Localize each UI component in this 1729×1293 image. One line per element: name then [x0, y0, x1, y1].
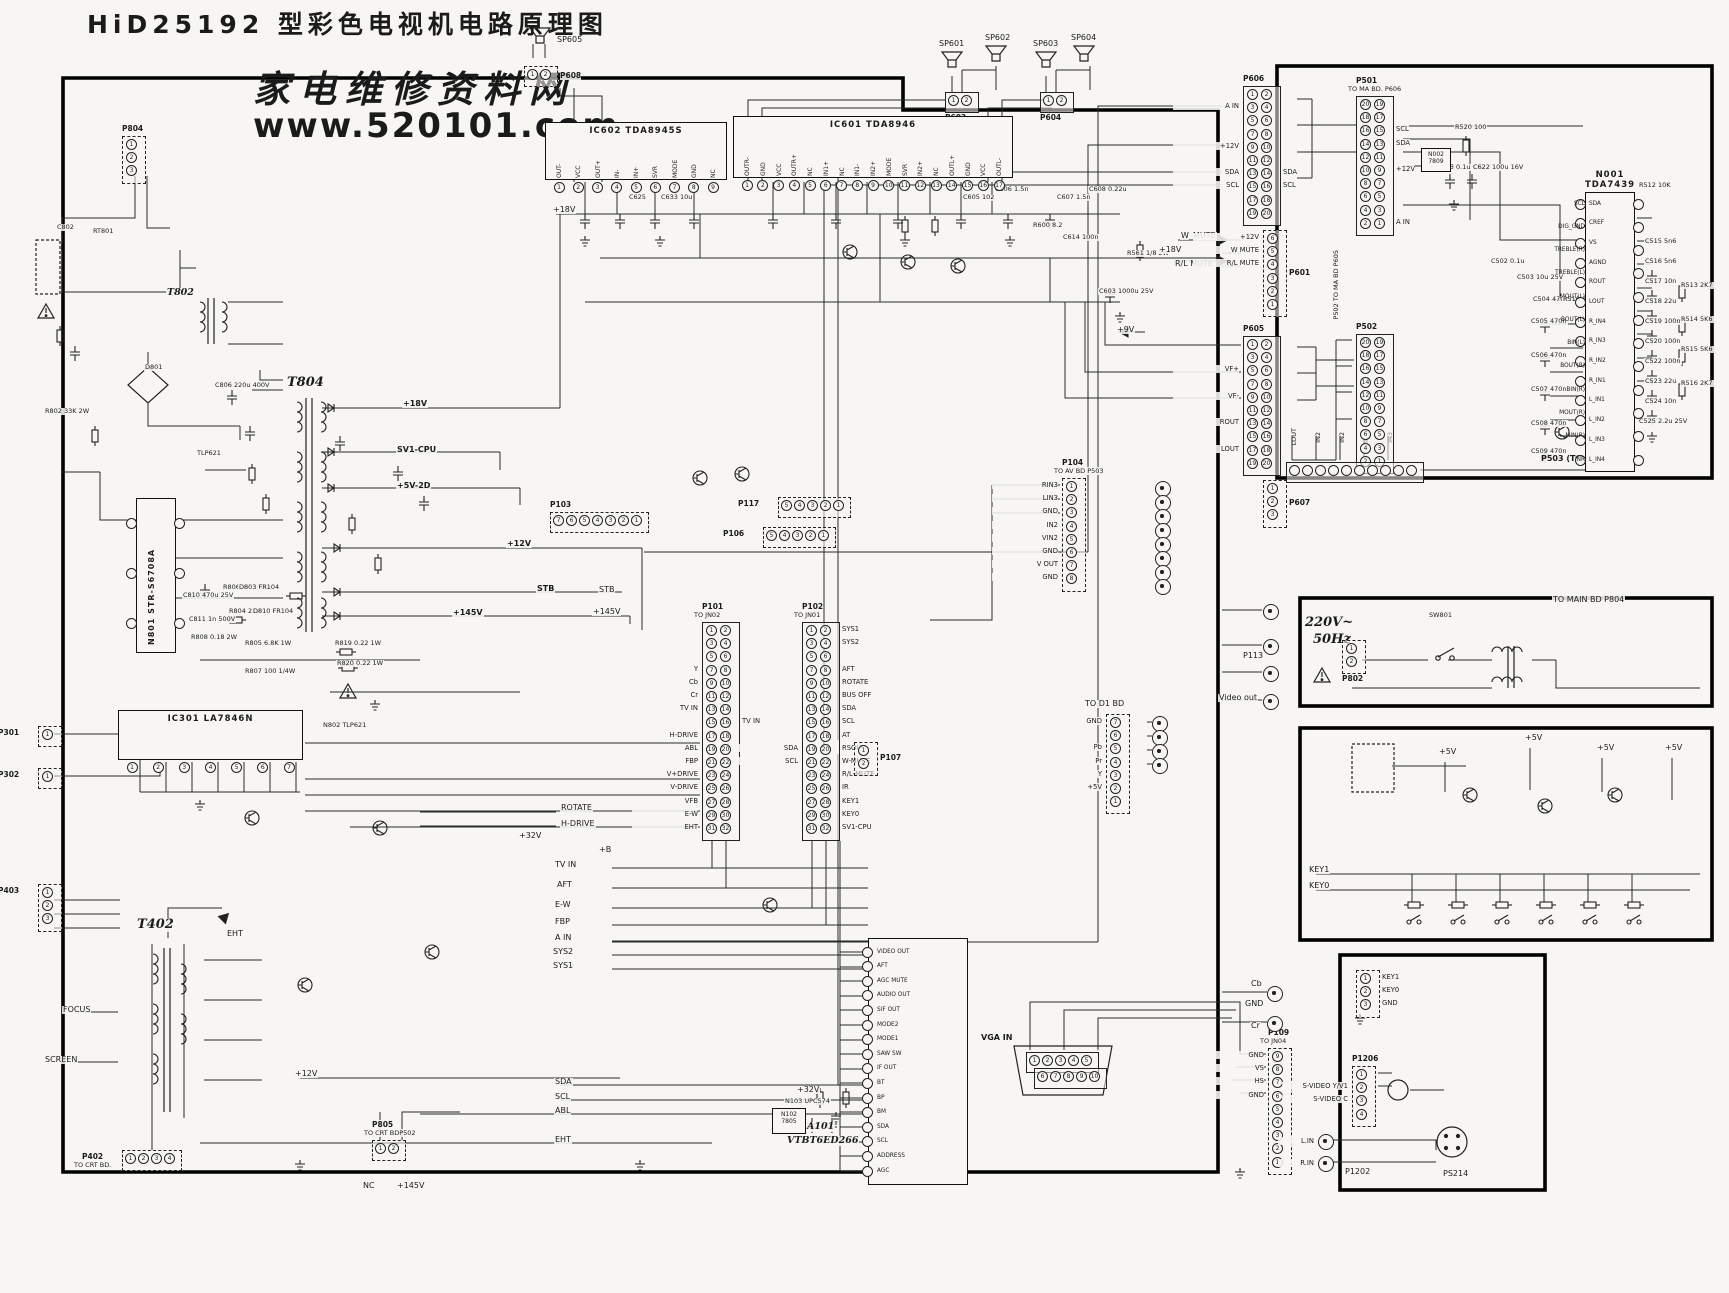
- ic-pin: 2: [153, 762, 164, 773]
- pin: 11: [706, 691, 717, 702]
- ic-pin: 4: [789, 180, 800, 191]
- connector-id: P402: [82, 1152, 103, 1161]
- ic-pin-name: SVR: [652, 134, 659, 178]
- ic-pin-name: L_IN3: [1589, 437, 1605, 443]
- ic-pin: [1633, 408, 1644, 419]
- ic-pin-name: MODE1: [877, 1036, 898, 1042]
- pin: 20: [1261, 458, 1272, 469]
- signal-label: +5V: [1036, 783, 1102, 791]
- ic-label: N001: [1565, 170, 1655, 180]
- connector-id: P107: [880, 753, 901, 762]
- ic-pin: [1633, 222, 1644, 233]
- pin: 20: [1261, 208, 1272, 219]
- ic-pin-name: BOUT(R): [1539, 363, 1585, 369]
- connector-id: P804: [122, 124, 143, 133]
- signal-label: GND: [992, 547, 1058, 555]
- signal-label: LOUT: [1173, 445, 1239, 453]
- pin: 5: [1272, 1104, 1283, 1115]
- label: C633 10u: [660, 194, 693, 201]
- pin: 1: [527, 69, 538, 80]
- ic-pin-name: SDA: [877, 1124, 889, 1130]
- pin: 3: [1267, 273, 1278, 284]
- pin: 8: [820, 665, 831, 676]
- label: Video out: [1218, 694, 1258, 702]
- ic-pin: 7: [284, 762, 295, 773]
- pin: [1393, 465, 1404, 476]
- pin: 17: [1247, 195, 1258, 206]
- pin: 2: [138, 1153, 149, 1164]
- pin: 3: [1374, 443, 1385, 454]
- pin: 1: [1346, 643, 1357, 654]
- ic-pin-name: SAW SW: [877, 1051, 901, 1057]
- label: TO D1 BD: [1084, 700, 1125, 708]
- ic-pin-name: SIF OUT: [877, 1007, 900, 1013]
- signal-label: A IN: [1396, 218, 1410, 226]
- label: SP602: [984, 34, 1011, 42]
- pin: 9: [1247, 142, 1258, 153]
- ic-pin-name: IN2+: [870, 132, 877, 176]
- pin: 9: [1076, 1071, 1087, 1082]
- label: P1202: [1344, 1168, 1371, 1176]
- pin: 8: [1261, 129, 1272, 140]
- label: +5V: [1596, 744, 1615, 752]
- ic-pin-name: INR: [1539, 457, 1585, 463]
- label: C605 102: [962, 194, 995, 201]
- label: C519 100n: [1644, 318, 1682, 325]
- ic-pin: [174, 568, 185, 579]
- pin: 13: [1374, 139, 1385, 150]
- ic-pin-name: R_IN1: [1589, 378, 1606, 384]
- reg-part: 7805: [773, 1119, 805, 1126]
- label: T402: [136, 918, 175, 932]
- pin: 10: [720, 678, 731, 689]
- rca-jack: [1318, 1156, 1334, 1172]
- pin: 9: [1272, 1051, 1283, 1062]
- ic-pin-name: OUTR-: [744, 132, 751, 176]
- ic-pin-name: DIG_GND: [1539, 224, 1585, 230]
- signal-label: ROTATE: [842, 678, 868, 686]
- pin: 7: [553, 515, 564, 526]
- pin: 2: [1261, 339, 1272, 350]
- signal-label: VIN2: [992, 534, 1058, 542]
- pin: 2: [961, 95, 972, 106]
- pin: [1380, 465, 1391, 476]
- label: IN2: [1314, 432, 1323, 443]
- pin: 4: [1360, 443, 1371, 454]
- connector-id: P802: [1342, 674, 1363, 683]
- pin: 21: [706, 757, 717, 768]
- pin: 1: [1247, 339, 1258, 350]
- pin: 10: [1261, 142, 1272, 153]
- pin: [1289, 465, 1300, 476]
- label: SP601: [938, 40, 965, 48]
- label: A IN: [554, 934, 572, 942]
- pin: 4: [1110, 757, 1121, 768]
- pin: 30: [820, 810, 831, 821]
- signal-label: KEY1: [1382, 973, 1399, 981]
- ic-pin-name: ROUT: [1589, 279, 1605, 285]
- pin: 12: [1261, 155, 1272, 166]
- ic-pin: 3: [773, 180, 784, 191]
- ic-pin: 11: [899, 180, 910, 191]
- pin: 4: [779, 530, 790, 541]
- pin: 19: [1374, 99, 1385, 110]
- rca-jack: [1318, 1134, 1334, 1150]
- label: +145V: [592, 608, 621, 616]
- ic-pin-name: VS: [1589, 240, 1597, 246]
- ic-pin-name: BP: [877, 1095, 884, 1101]
- signal-label: IR: [842, 783, 849, 791]
- label: D803 FR104: [238, 584, 280, 591]
- pin: 27: [706, 797, 717, 808]
- label: C522 100n: [1644, 358, 1682, 365]
- label: +18V: [1158, 246, 1182, 254]
- label: Cb: [1250, 980, 1263, 988]
- ic-pin-name: OUT+: [595, 134, 602, 178]
- signal-label: SDA: [1173, 168, 1239, 176]
- pin: 11: [1247, 405, 1258, 416]
- pin: 10: [1089, 1071, 1100, 1082]
- reg-N102: N1027805: [772, 1108, 806, 1134]
- ic-pin-name: NC: [710, 134, 717, 178]
- pin: 17: [806, 731, 817, 742]
- ic-pin: 6: [650, 182, 661, 193]
- label: AFT: [556, 881, 573, 889]
- ic-pin-name: L_IN2: [1589, 417, 1605, 423]
- label: R600 8.2: [1032, 222, 1063, 229]
- pin: 2: [1360, 218, 1371, 229]
- label: +12V: [294, 1070, 318, 1078]
- signal-label: Cb: [632, 678, 698, 686]
- ic-pin: [862, 947, 873, 958]
- pin: 3: [1374, 205, 1385, 216]
- pin: 7: [1050, 1071, 1061, 1082]
- ic-pin: [1633, 315, 1644, 326]
- connector-id: P117: [738, 499, 759, 508]
- label: +5V: [1438, 748, 1457, 756]
- label: PS214: [1442, 1170, 1469, 1178]
- pin: 1: [631, 515, 642, 526]
- pin: 1: [858, 745, 869, 756]
- pin: 12: [1360, 390, 1371, 401]
- pin: [1354, 465, 1365, 476]
- signal-label: Pr: [1036, 757, 1102, 765]
- label: SP605: [556, 36, 583, 44]
- connector-id: P604: [1040, 113, 1061, 122]
- label: FBP: [554, 918, 571, 926]
- label: +5V: [1524, 734, 1543, 742]
- ic-pin-name: IN-: [614, 134, 621, 178]
- signal-label: SCL: [1283, 181, 1296, 189]
- pin: 8: [1063, 1071, 1074, 1082]
- label: Cr: [1250, 1022, 1261, 1030]
- label: ABL: [554, 1107, 571, 1115]
- label: C525 2.2u 25V: [1638, 418, 1688, 425]
- pin: 3: [605, 515, 616, 526]
- signal-label: +12V: [1396, 165, 1415, 173]
- label: NC: [362, 1182, 376, 1190]
- ic-pin: [126, 568, 137, 579]
- pin: [1328, 465, 1339, 476]
- label: R805 6.8K 1W: [244, 640, 292, 647]
- pin: 2: [820, 500, 831, 511]
- pin: 4: [1272, 1117, 1283, 1128]
- signal-label: V-DRIVE: [632, 783, 698, 791]
- page-title: HiD25192 型彩色电视机电路原理图: [86, 12, 609, 39]
- ic-pin: [862, 1122, 873, 1133]
- pin: 13: [1374, 377, 1385, 388]
- label: C608 0.22u: [1088, 186, 1128, 193]
- ic-pin-name: OUT-: [556, 134, 563, 178]
- ic-pin: 1: [127, 762, 138, 773]
- pin: 2: [618, 515, 629, 526]
- label: +9V: [1116, 326, 1135, 334]
- pin: 12: [820, 691, 831, 702]
- signal-label: Y: [1036, 770, 1102, 778]
- label: KEY1: [1308, 866, 1330, 874]
- ic-pin: [1633, 292, 1644, 303]
- pin: 12: [720, 691, 731, 702]
- label: SV1-CPU: [396, 446, 437, 454]
- label: FOCUS: [62, 1006, 91, 1014]
- pin: 1: [1066, 481, 1077, 492]
- ic-pin: 1: [742, 180, 753, 191]
- connector-id: P605: [1243, 324, 1264, 333]
- signal-label: S-VIDEO C: [1282, 1095, 1348, 1103]
- ic-pin-name: IN1-: [854, 132, 861, 176]
- pin: 18: [820, 731, 831, 742]
- pin: 1: [1356, 1069, 1367, 1080]
- ic-label: TDA7439: [1565, 180, 1655, 190]
- pin: 7: [806, 665, 817, 676]
- ic-pin: [174, 618, 185, 629]
- ic-pin-name: VIDEO OUT: [877, 949, 910, 955]
- signal-label: GND: [992, 573, 1058, 581]
- connector-id: P301: [0, 728, 19, 737]
- label: +18V: [402, 400, 428, 408]
- pin: 9: [806, 678, 817, 689]
- label: H-DRIVE: [560, 820, 596, 828]
- connector-id: P606: [1243, 74, 1264, 83]
- pin: [1302, 465, 1313, 476]
- signal-label: TV IN: [742, 717, 760, 725]
- label: SP604: [1070, 34, 1097, 42]
- pin: 6: [1267, 233, 1278, 244]
- connector-subtitle: TO JN01: [794, 611, 820, 619]
- signal-label: VF-: [1173, 392, 1239, 400]
- ic-pin: [862, 1166, 873, 1177]
- pin: 4: [592, 515, 603, 526]
- label: C517 10n: [1644, 278, 1677, 285]
- label: C506 470n: [1530, 352, 1568, 359]
- ic-pin: [1633, 385, 1644, 396]
- label: IN2: [1338, 432, 1347, 443]
- rca-jack: [1267, 986, 1283, 1002]
- pin: 7: [1247, 379, 1258, 390]
- ic-pin-name: GND: [965, 132, 972, 176]
- ic-N801: [136, 498, 176, 653]
- connector-id: P502: [1356, 322, 1377, 331]
- connector-subtitle: TO JN04: [1260, 1037, 1286, 1045]
- connector-id: P102: [802, 602, 823, 611]
- ic-pin-name: MODE2: [877, 1022, 898, 1028]
- pin: 14: [1360, 139, 1371, 150]
- signal-label: SDA: [842, 704, 856, 712]
- ic-pin-name: R_IN2: [1589, 358, 1606, 364]
- ic-pin-name: NC: [807, 132, 814, 176]
- ic-pin: 15: [962, 180, 973, 191]
- label: VGA IN: [980, 1034, 1013, 1042]
- pin: 5: [579, 515, 590, 526]
- signal-label: LIN3: [992, 494, 1058, 502]
- pin: 6: [1037, 1071, 1048, 1082]
- label: C810 470u 25V: [182, 592, 234, 599]
- connector-id: P607: [1289, 498, 1310, 507]
- ic-pin-name: GND: [760, 132, 767, 176]
- pin: 1: [818, 530, 829, 541]
- pin: 1: [42, 771, 53, 782]
- signal-label: Cr: [632, 691, 698, 699]
- signal-label: GND: [992, 507, 1058, 515]
- pin: 2: [1267, 286, 1278, 297]
- ic-pin: [862, 1151, 873, 1162]
- label: C516 5n6: [1644, 258, 1677, 265]
- ic-pin-name: VCC: [980, 132, 987, 176]
- component-shapes: [36, 240, 1514, 1157]
- ic-pin-name: GND: [691, 134, 698, 178]
- signal-label: SV1-CPU: [842, 823, 872, 831]
- signal-label: SDA: [1283, 168, 1297, 176]
- label: EHT: [226, 930, 244, 938]
- ic-pin-name: BIN(L): [1539, 340, 1585, 346]
- jack-label: L.IN: [1278, 1137, 1314, 1145]
- label: SDA: [554, 1078, 573, 1086]
- label: +12V: [506, 540, 532, 548]
- rca-jack: [1267, 1016, 1283, 1032]
- ic-pin: 2: [573, 182, 584, 193]
- pin: 6: [566, 515, 577, 526]
- ic-pin: [1633, 455, 1644, 466]
- signal-label: SCL: [732, 757, 798, 765]
- pin: 32: [820, 823, 831, 834]
- ic-pin: 4: [205, 762, 216, 773]
- ic-pin-name: VCC: [776, 132, 783, 176]
- signal-label: AT: [842, 731, 850, 739]
- signal-label: TV IN: [632, 704, 698, 712]
- pin: 7: [1247, 129, 1258, 140]
- ic-pin: [862, 1093, 873, 1104]
- ic-pin-name: MIN(R): [1539, 433, 1585, 439]
- label: R807 100 1/4W: [244, 668, 296, 675]
- ic-pin-name: IN1+: [823, 132, 830, 176]
- pin: 31: [806, 823, 817, 834]
- signal-label: Y: [632, 665, 698, 673]
- pin: 7: [706, 665, 717, 676]
- pin: 1: [1043, 95, 1054, 106]
- rca-jack: [1263, 694, 1279, 710]
- ic-pin-name: R_IN3: [1589, 338, 1606, 344]
- pin: 18: [1261, 445, 1272, 456]
- label: +5V: [1664, 744, 1683, 752]
- pin: 8: [1261, 379, 1272, 390]
- ic-pin: 17: [994, 180, 1005, 191]
- pin: 4: [1066, 521, 1077, 532]
- reg-part: 7809: [1422, 159, 1450, 166]
- ic-pin: 8: [852, 180, 863, 191]
- signal-label: HS: [1198, 1077, 1264, 1085]
- signal-label: ROUT: [1173, 418, 1239, 426]
- ic-pin-name: MOUT(L): [1539, 294, 1585, 300]
- pin: 1: [1374, 218, 1385, 229]
- label: R520 100: [1454, 124, 1487, 131]
- pin: 32: [720, 823, 731, 834]
- ic-pin-name: AGC: [877, 1168, 889, 1174]
- ic-pin-name: AGC MUTE: [877, 978, 908, 984]
- pin: 2: [540, 69, 551, 80]
- connector-subtitle: TO CRT BD.: [74, 1161, 111, 1169]
- signal-label: Pb: [1036, 743, 1102, 751]
- rca-jack: [1152, 758, 1168, 774]
- label: P113: [1242, 652, 1264, 660]
- rca-jack: [1263, 639, 1279, 655]
- signal-label: FBP: [632, 757, 698, 765]
- pin: 19: [1247, 208, 1258, 219]
- pin: 10: [1261, 392, 1272, 403]
- label: C515 5n6: [1644, 238, 1677, 245]
- label: +5V-2D: [396, 482, 431, 490]
- label: LOUT: [1290, 428, 1299, 445]
- ic-pin: [862, 1049, 873, 1060]
- signal-label: VFB: [632, 797, 698, 805]
- ic-pin: [126, 618, 137, 629]
- label: R820 0.22 1W: [336, 660, 384, 667]
- signal-label: GND: [1036, 717, 1102, 725]
- ic-pin: 7: [669, 182, 680, 193]
- pin: 4: [164, 1153, 175, 1164]
- signal-label: BUS OFF: [842, 691, 871, 699]
- ic-pin-name: L_IN1: [1589, 397, 1605, 403]
- pin: 19: [706, 744, 717, 755]
- pin: 1: [42, 729, 53, 740]
- pin: 14: [1360, 377, 1371, 388]
- ic-N001: [1585, 192, 1635, 472]
- ic-pin: 16: [978, 180, 989, 191]
- label: SCL: [554, 1093, 571, 1101]
- pin: 1: [42, 887, 53, 898]
- label: C520 100n: [1644, 338, 1682, 345]
- ic-pin-name: BT: [877, 1080, 885, 1086]
- jack-label: R.IN: [1278, 1159, 1314, 1167]
- pin: 27: [806, 797, 817, 808]
- label: R516 2K7: [1680, 380, 1714, 387]
- signal-label: GND: [1382, 999, 1398, 1007]
- signal-label: VS: [1198, 1064, 1264, 1072]
- label: TV IN: [554, 861, 577, 869]
- pin: 11: [1374, 152, 1385, 163]
- pin: 29: [806, 810, 817, 821]
- pin: 10: [1360, 403, 1371, 414]
- label: D810 FR104: [252, 608, 294, 615]
- pin: 2: [1110, 783, 1121, 794]
- rca-jack: [1263, 604, 1279, 620]
- ic-pin: 7: [836, 180, 847, 191]
- label: TO MAIN BD P804: [1552, 596, 1625, 604]
- pin: 4: [1360, 205, 1371, 216]
- ic-pin: [1633, 199, 1644, 210]
- ic-pin-name: ADDRESS: [877, 1153, 905, 1159]
- pin: 1: [833, 500, 844, 511]
- ic-label: IC601 TDA8946: [733, 120, 1013, 130]
